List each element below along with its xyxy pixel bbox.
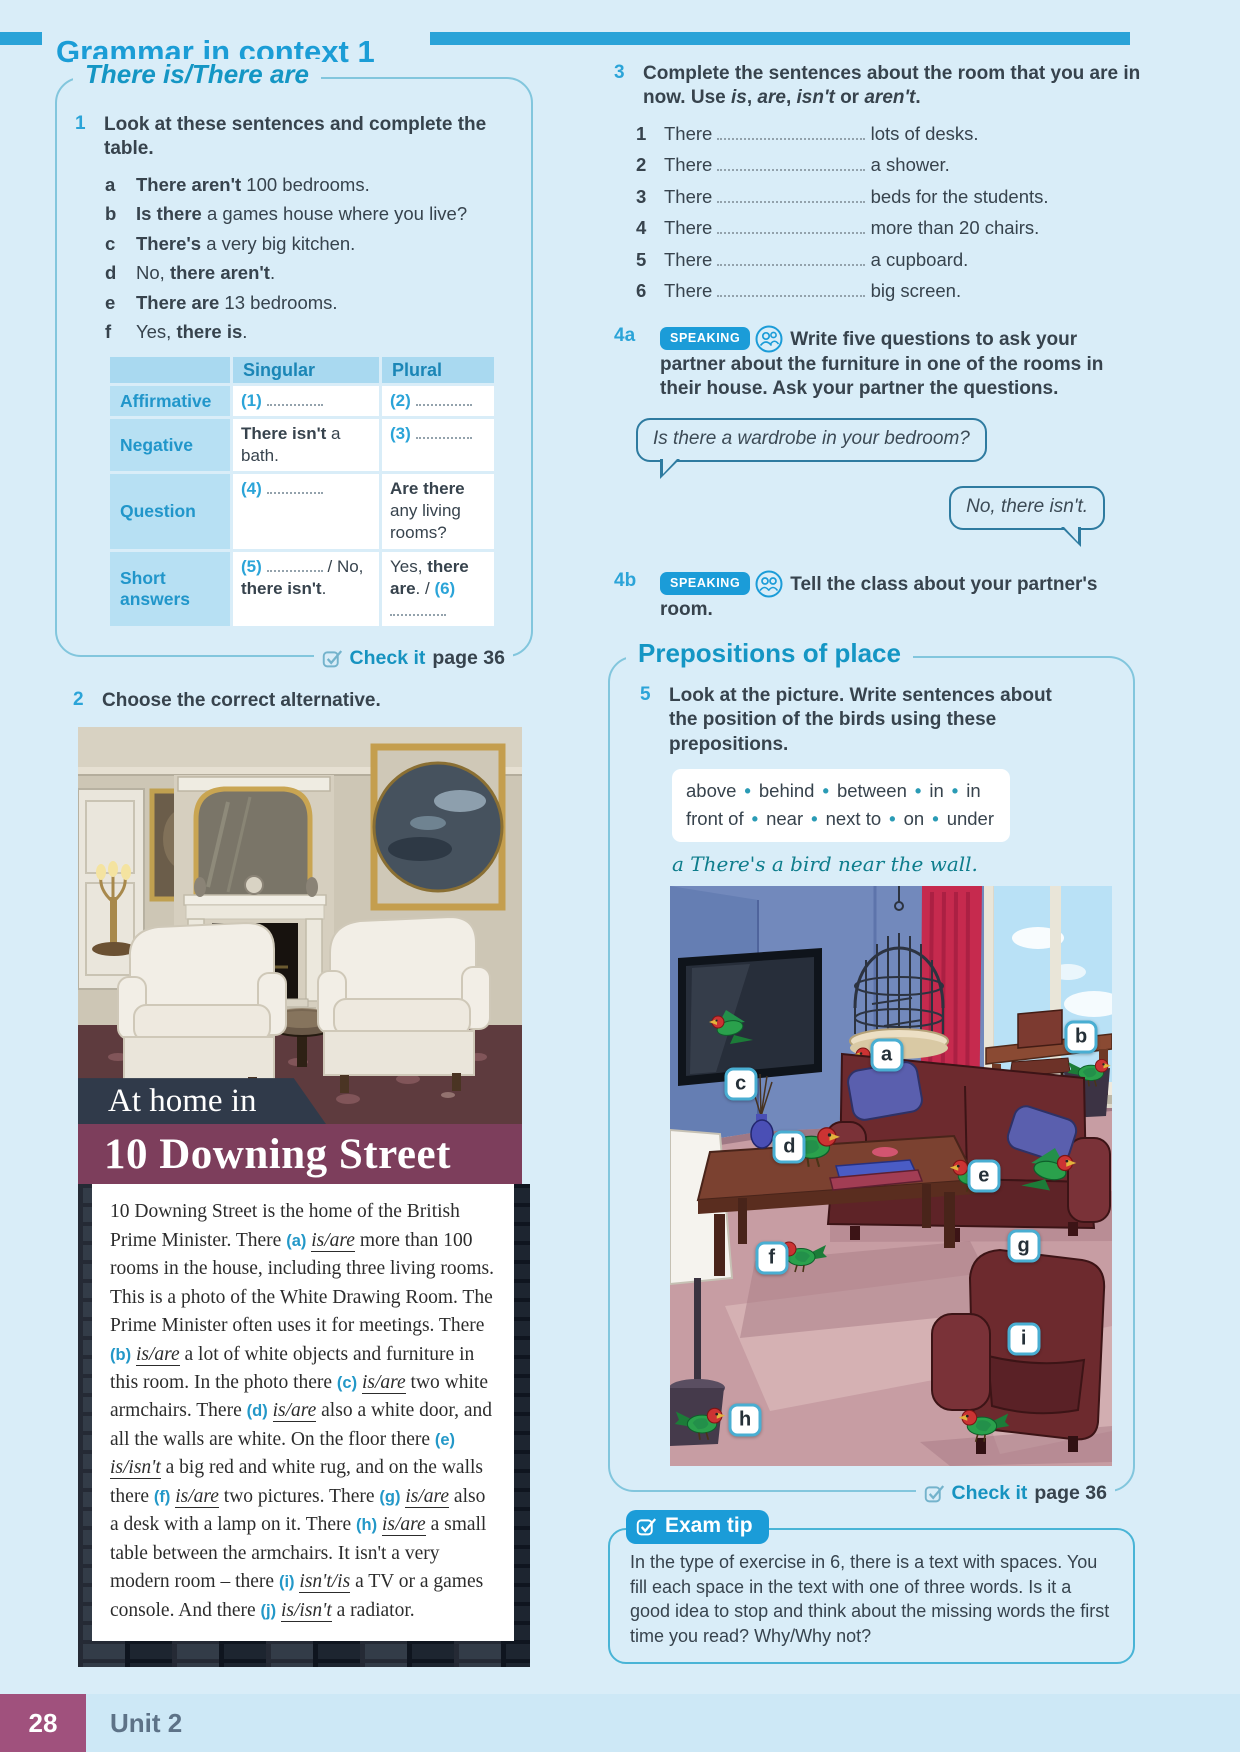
picture-label-d: d xyxy=(773,1131,806,1164)
italic-text: is xyxy=(731,87,747,108)
table-cell: There isn't a bath. xyxy=(233,419,379,471)
item-text: There a cupboard. xyxy=(664,249,968,272)
speech-bubble-text: No, there isn't. xyxy=(966,496,1088,517)
bold-text: there is xyxy=(176,321,242,342)
bold-text: Are there xyxy=(390,479,465,498)
prepositions-word-box: above•behind•between•in•in front of•near… xyxy=(672,769,1010,843)
preposition-word: under xyxy=(947,808,994,829)
bullet-separator: • xyxy=(915,780,921,801)
blank-number: (2) xyxy=(390,391,411,410)
table-column-header: Plural xyxy=(382,357,494,383)
exercise-4b: 4b SPEAKINGTell the class about your par… xyxy=(614,570,1141,622)
grammar-table: SingularPluralAffirmative(1)(2)NegativeT… xyxy=(107,354,497,629)
exercise-prompt: Complete the sentences about the room th… xyxy=(643,62,1141,111)
preposition-word: above xyxy=(686,780,736,801)
footer-band xyxy=(0,1694,1240,1752)
item-letter: b xyxy=(105,203,136,226)
exercise-3: 3 Complete the sentences about the room … xyxy=(614,62,1141,111)
grammar-box-prepositions: Prepositions of place 5 Look at the pict… xyxy=(608,656,1135,1492)
speech-bubble-question: Is there a wardrobe in your bedroom? xyxy=(636,418,987,462)
table-column-header: Singular xyxy=(233,357,379,383)
table-row: Short answers(5) / No, there isn't.Yes, … xyxy=(110,552,494,626)
table-row-label: Affirmative xyxy=(110,386,230,416)
bullet-separator: • xyxy=(932,808,938,829)
check-it-page: page 36 xyxy=(432,647,505,670)
choice-options: is/are xyxy=(175,1486,219,1508)
table-row-label: Negative xyxy=(110,419,230,471)
preposition-word: between xyxy=(837,780,907,801)
preposition-word: in xyxy=(929,780,943,801)
photo-caption-main: 10 Downing Street xyxy=(78,1124,522,1184)
item-text: There lots of desks. xyxy=(664,123,979,146)
gapfill-item: 6There big screen. xyxy=(636,280,1141,303)
downing-street-photo: At home in 10 Downing Street xyxy=(78,727,522,1184)
dotted-blank xyxy=(267,481,323,494)
exercise-number: 4b xyxy=(614,570,660,622)
preposition-word: on xyxy=(904,808,925,829)
choice-letter: (j) xyxy=(261,1602,277,1620)
bullet-separator: • xyxy=(822,780,828,801)
choice-options: is/are xyxy=(136,1344,180,1366)
table-cell: (3) xyxy=(382,419,494,471)
choice-letter: (h) xyxy=(356,1516,377,1534)
table-row: Affirmative(1)(2) xyxy=(110,386,494,416)
table-cell: Yes, there are. / (6) xyxy=(382,552,494,626)
exercise-3-sentences: 1There lots of desks.2There a shower.3Th… xyxy=(636,123,1141,303)
room-illustration xyxy=(670,886,1112,1466)
dotted-blank xyxy=(717,127,865,140)
header-accent-bar-right xyxy=(430,32,1130,45)
right-column: 3 Complete the sentences about the room … xyxy=(596,62,1141,1664)
choice-letter: (g) xyxy=(379,1488,400,1506)
item-number: 2 xyxy=(636,154,664,177)
item-text: There big screen. xyxy=(664,280,961,303)
gapfill-item: 2There a shower. xyxy=(636,154,1141,177)
choice-options: is/isn't xyxy=(110,1457,161,1479)
check-it-link: Check it page 36 xyxy=(916,1482,1115,1505)
choice-letter: (f) xyxy=(154,1488,170,1506)
blank-number: (4) xyxy=(241,479,262,498)
check-it-label: Check it xyxy=(350,647,426,670)
choice-options: is/are xyxy=(273,1400,317,1422)
speaking-badge: SPEAKING xyxy=(660,572,750,595)
dotted-blank xyxy=(390,603,446,616)
header-accent-bar-left xyxy=(0,32,42,45)
bold-text: there are xyxy=(390,557,469,598)
exercise-number: 4a xyxy=(614,325,660,402)
choice-letter: (d) xyxy=(247,1402,268,1420)
item-letter: f xyxy=(105,321,136,344)
italic-text: isn't xyxy=(797,87,835,108)
item-letter: d xyxy=(105,262,136,285)
exam-tip-pill: Exam tip xyxy=(626,1510,769,1544)
table-row-label: Question xyxy=(110,474,230,548)
bold-text: there isn't xyxy=(241,579,322,598)
blank-number: (5) xyxy=(241,557,262,576)
exam-tip-text: In the type of exercise in 6, there is a… xyxy=(630,1550,1113,1648)
item-letter: c xyxy=(105,233,136,256)
exercise-prompt: Choose the correct alternative. xyxy=(102,689,533,713)
item-text: Is there a games house where you live? xyxy=(136,203,467,226)
italic-text: aren't xyxy=(864,87,915,108)
drawing-room-photo-illustration xyxy=(78,727,522,1124)
picture-label-i: i xyxy=(1007,1322,1040,1355)
exercise-prompt: SPEAKINGWrite five questions to ask your… xyxy=(660,325,1141,402)
choice-options: is/are xyxy=(382,1514,426,1536)
exercise-prompt: Look at these sentences and complete the… xyxy=(104,113,525,162)
table-column-header xyxy=(110,357,230,383)
bullet-separator: • xyxy=(952,780,958,801)
example-answer: a There's a bird near the wall. xyxy=(672,852,1133,876)
speech-bubble-answer: No, there isn't. xyxy=(949,486,1105,530)
table-header-row: SingularPlural xyxy=(110,357,494,383)
item-text: There more than 20 chairs. xyxy=(664,217,1039,240)
exercise-number: 3 xyxy=(614,62,643,111)
exercise-number: 5 xyxy=(640,684,669,757)
exercise-prompt: SPEAKINGTell the class about your partne… xyxy=(660,570,1141,622)
dotted-blank xyxy=(717,284,865,297)
table-row: Question(4)Are there any living rooms? xyxy=(110,474,494,548)
sentence-item: eThere are 13 bedrooms. xyxy=(105,292,525,315)
unit-label: Unit 2 xyxy=(110,1708,182,1739)
dotted-blank xyxy=(717,221,865,234)
picture-label-g: g xyxy=(1007,1229,1040,1262)
bullet-separator: • xyxy=(752,808,758,829)
reading-passage: 10 Downing Street is the home of the Bri… xyxy=(92,1184,514,1641)
check-it-page: page 36 xyxy=(1034,1482,1107,1505)
choice-letter: (i) xyxy=(279,1573,295,1591)
photo-caption-top: At home in xyxy=(78,1078,326,1124)
table-cell: (1) xyxy=(233,386,379,416)
bold-text: There's xyxy=(136,233,201,254)
bold-text: There are xyxy=(136,292,219,313)
checkbox-check-icon xyxy=(636,1516,657,1537)
picture-label-a: a xyxy=(870,1038,903,1071)
gapfill-item: 1There lots of desks. xyxy=(636,123,1141,146)
choice-letter: (e) xyxy=(435,1431,455,1449)
item-text: There's a very big kitchen. xyxy=(136,233,355,256)
dotted-blank xyxy=(416,393,472,406)
speech-bubble-text: Is there a wardrobe in your bedroom? xyxy=(653,428,970,449)
exercise-number: 2 xyxy=(73,689,102,713)
bullet-separator: • xyxy=(889,808,895,829)
choice-letter: (a) xyxy=(286,1232,306,1250)
table-cell: (4) xyxy=(233,474,379,548)
exercise-number: 1 xyxy=(75,113,104,162)
picture-label-h: h xyxy=(729,1403,762,1436)
choice-options: is/are xyxy=(311,1230,355,1252)
preposition-word: near xyxy=(766,808,803,829)
grammar-box-there-is-are: There is/There are 1 Look at these sente… xyxy=(55,77,533,657)
passage-text: 10 Downing Street is the home of the Bri… xyxy=(110,1201,494,1621)
choice-options: isn't/is xyxy=(299,1571,350,1593)
item-text: There are 13 bedrooms. xyxy=(136,292,338,315)
preposition-word: next to xyxy=(826,808,882,829)
choice-options: is/are xyxy=(362,1372,406,1394)
bullet-separator: • xyxy=(811,808,817,829)
table-cell: Are there any living rooms? xyxy=(382,474,494,548)
dotted-blank xyxy=(267,393,323,406)
checkbox-check-icon xyxy=(924,1483,945,1504)
bold-text: there aren't xyxy=(170,262,270,283)
item-text: There beds for the students. xyxy=(664,186,1049,209)
item-number: 5 xyxy=(636,249,664,272)
item-letter: e xyxy=(105,292,136,315)
speech-bubble-tail xyxy=(663,459,677,474)
bold-text: There isn't xyxy=(241,424,326,443)
sentence-item: cThere's a very big kitchen. xyxy=(105,233,525,256)
check-it-label: Check it xyxy=(952,1482,1028,1505)
sentence-item: aThere aren't 100 bedrooms. xyxy=(105,174,525,197)
partners-icon xyxy=(755,325,783,353)
speaking-badge: SPEAKING xyxy=(660,327,750,350)
blank-number: (3) xyxy=(390,424,411,443)
exercise-1: 1 Look at these sentences and complete t… xyxy=(75,113,525,162)
bold-text: Is there xyxy=(136,203,202,224)
exam-tip-title: Exam tip xyxy=(665,1514,753,1538)
birds-room-picture: abcdefghi xyxy=(670,886,1112,1466)
dotted-blank xyxy=(717,253,865,266)
exercise-4a: 4a SPEAKINGWrite five questions to ask y… xyxy=(614,325,1141,402)
speech-bubble-tail xyxy=(1064,527,1078,542)
gapfill-item: 4There more than 20 chairs. xyxy=(636,217,1141,240)
dotted-blank xyxy=(416,426,472,439)
italic-text: are xyxy=(757,87,786,108)
sentence-item: fYes, there is. xyxy=(105,321,525,344)
table-row: NegativeThere isn't a bath.(3) xyxy=(110,419,494,471)
item-text: No, there aren't. xyxy=(136,262,275,285)
exercise-prompt: Look at the picture. Write sentences abo… xyxy=(669,684,1069,757)
brick-frame: 10 Downing Street is the home of the Bri… xyxy=(78,1184,530,1667)
item-text: There aren't 100 bedrooms. xyxy=(136,174,370,197)
item-text: There a shower. xyxy=(664,154,950,177)
choice-options: is/isn't xyxy=(281,1600,332,1622)
gapfill-item: 5There a cupboard. xyxy=(636,249,1141,272)
bullet-separator: • xyxy=(744,780,750,801)
sentence-item: dNo, there aren't. xyxy=(105,262,525,285)
page-number: 28 xyxy=(0,1694,86,1752)
grammar-box-title: Prepositions of place xyxy=(626,638,913,669)
choice-letter: (c) xyxy=(337,1374,357,1392)
blank-number: (6) xyxy=(434,579,455,598)
table-row-label: Short answers xyxy=(110,552,230,626)
exercise-5: 5 Look at the picture. Write sentences a… xyxy=(640,684,1133,757)
choice-letter: (b) xyxy=(110,1346,131,1364)
preposition-word: behind xyxy=(759,780,815,801)
item-text: Yes, there is. xyxy=(136,321,247,344)
item-number: 3 xyxy=(636,186,664,209)
sentence-item: bIs there a games house where you live? xyxy=(105,203,525,226)
exercise-2: 2 Choose the correct alternative. xyxy=(73,689,533,713)
item-number: 4 xyxy=(636,217,664,240)
partners-icon xyxy=(755,570,783,598)
exercise-1-sentences: aThere aren't 100 bedrooms.bIs there a g… xyxy=(105,174,525,344)
bold-text: There aren't xyxy=(136,174,241,195)
picture-label-b: b xyxy=(1065,1021,1098,1054)
picture-label-e: e xyxy=(967,1160,1000,1193)
picture-label-f: f xyxy=(755,1241,788,1274)
table-cell: (2) xyxy=(382,386,494,416)
item-number: 1 xyxy=(636,123,664,146)
check-it-link: Check it page 36 xyxy=(314,647,513,670)
gapfill-item: 3There beds for the students. xyxy=(636,186,1141,209)
dotted-blank xyxy=(717,190,865,203)
table-cell: (5) / No, there isn't. xyxy=(233,552,379,626)
blank-number: (1) xyxy=(241,391,262,410)
checkbox-check-icon xyxy=(322,648,343,669)
dotted-blank xyxy=(717,158,865,171)
item-letter: a xyxy=(105,174,136,197)
picture-label-c: c xyxy=(724,1067,757,1100)
dotted-blank xyxy=(267,559,323,572)
choice-options: is/are xyxy=(405,1486,449,1508)
item-number: 6 xyxy=(636,280,664,303)
exam-tip-box: Exam tip In the type of exercise in 6, t… xyxy=(608,1528,1135,1664)
grammar-box-title: There is/There are xyxy=(73,59,321,90)
left-column: There is/There are 1 Look at these sente… xyxy=(55,70,533,1667)
